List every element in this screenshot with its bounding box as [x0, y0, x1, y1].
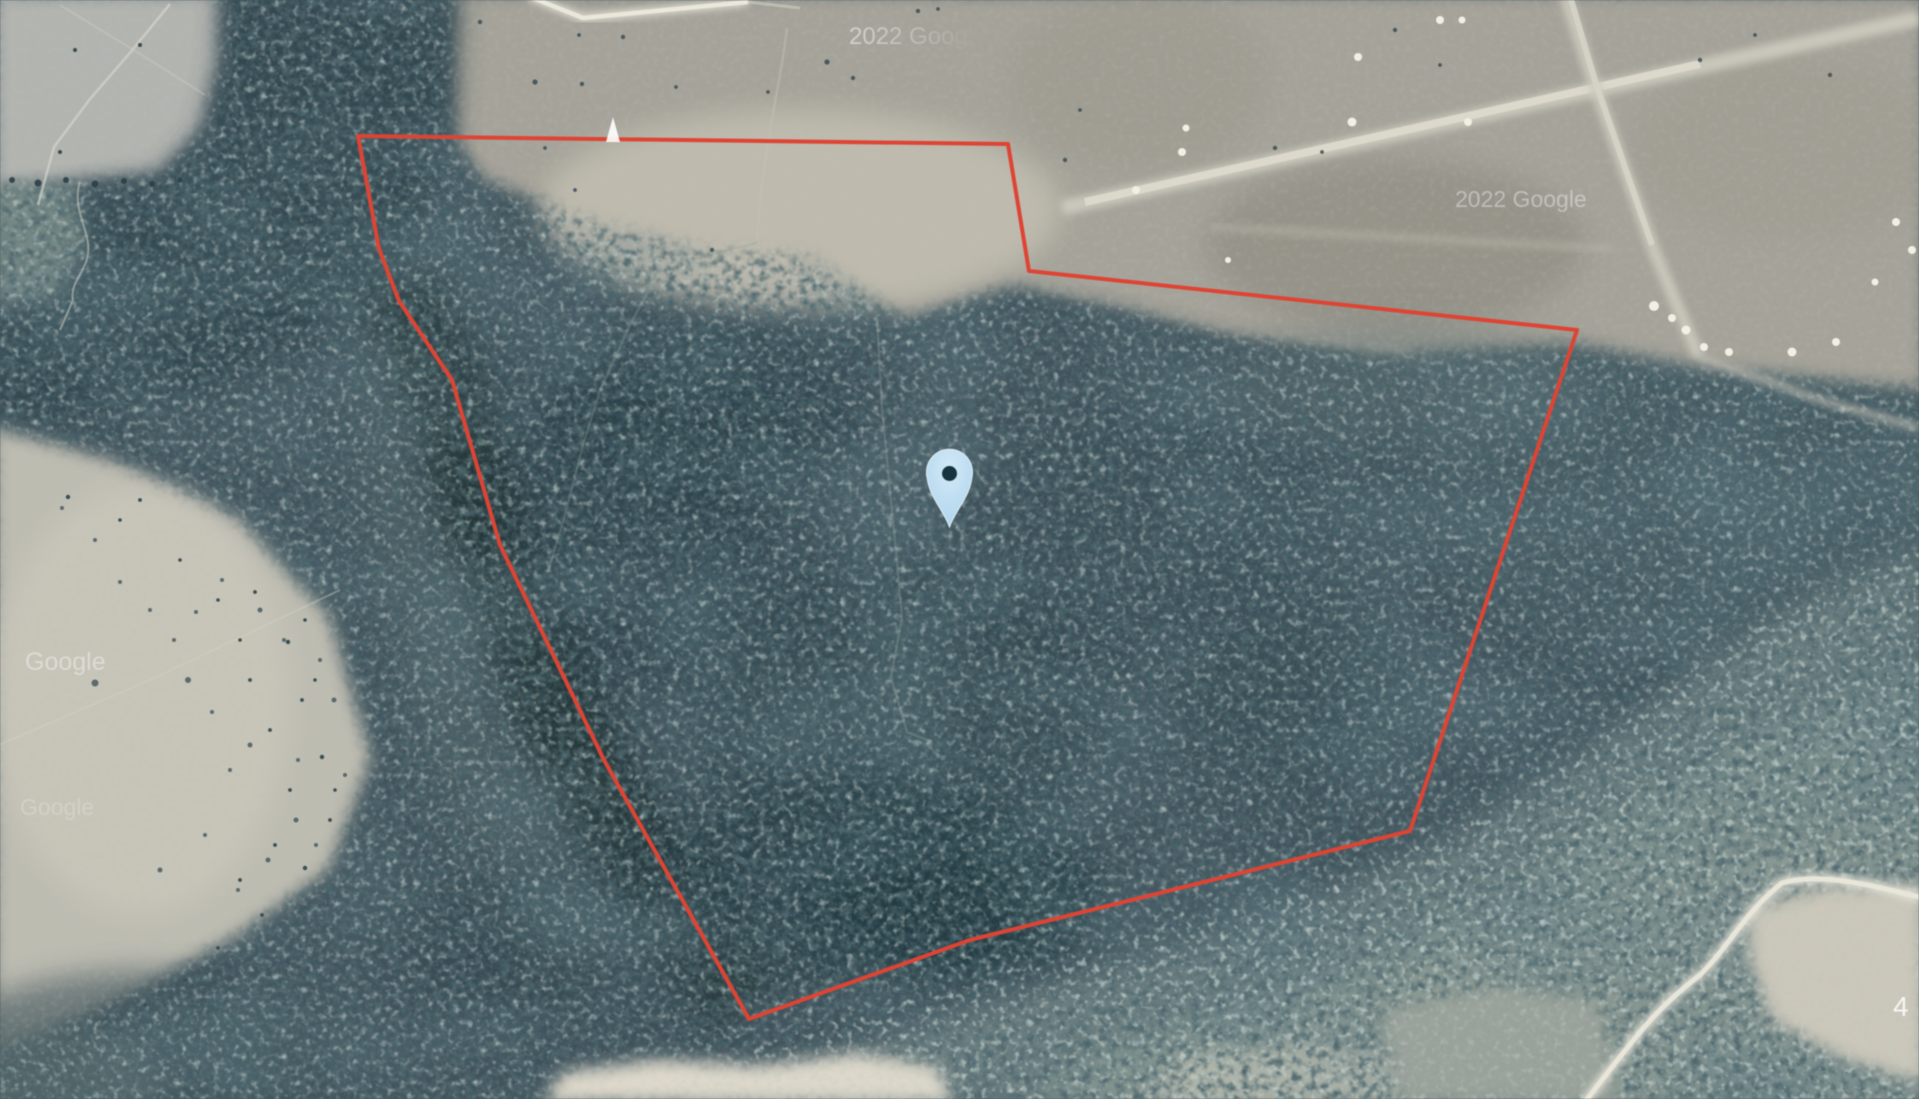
svg-text:2022 Google: 2022 Google: [1455, 186, 1587, 212]
svg-text:4: 4: [1893, 991, 1909, 1022]
svg-text:Google: Google: [20, 794, 94, 820]
svg-text:Google: Google: [25, 648, 106, 676]
svg-text:2022 Google: 2022 Google: [849, 23, 986, 50]
